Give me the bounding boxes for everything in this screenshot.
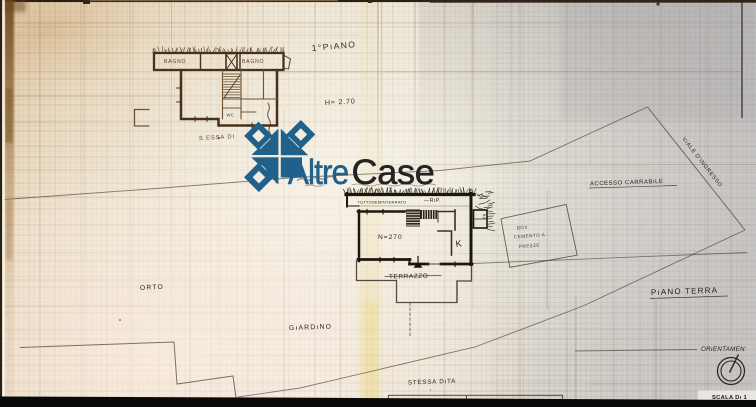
svg-text:Case: Case (352, 152, 435, 192)
svg-text:—RıP.: —RıP. (424, 198, 441, 204)
svg-text:BAGNO: BAGNO (242, 59, 264, 65)
svg-text:ORTO: ORTO (140, 284, 165, 292)
svg-text:K: K (455, 238, 463, 249)
svg-text:BAGNO: BAGNO (164, 59, 186, 65)
svg-text:H≈ 2.70: H≈ 2.70 (325, 96, 356, 107)
svg-text:ORıENTAMEN:: ORıENTAMEN: (701, 346, 747, 353)
svg-text:BA: BA (482, 214, 486, 220)
svg-text:BOX: BOX (517, 225, 529, 231)
svg-text:WC: WC (227, 113, 235, 118)
svg-text:TUTTOSEMINTERRATO: TUTTOSEMINTERRATO (358, 200, 407, 205)
svg-text:Altre: Altre (288, 153, 349, 192)
svg-text:N=270: N=270 (378, 234, 403, 241)
